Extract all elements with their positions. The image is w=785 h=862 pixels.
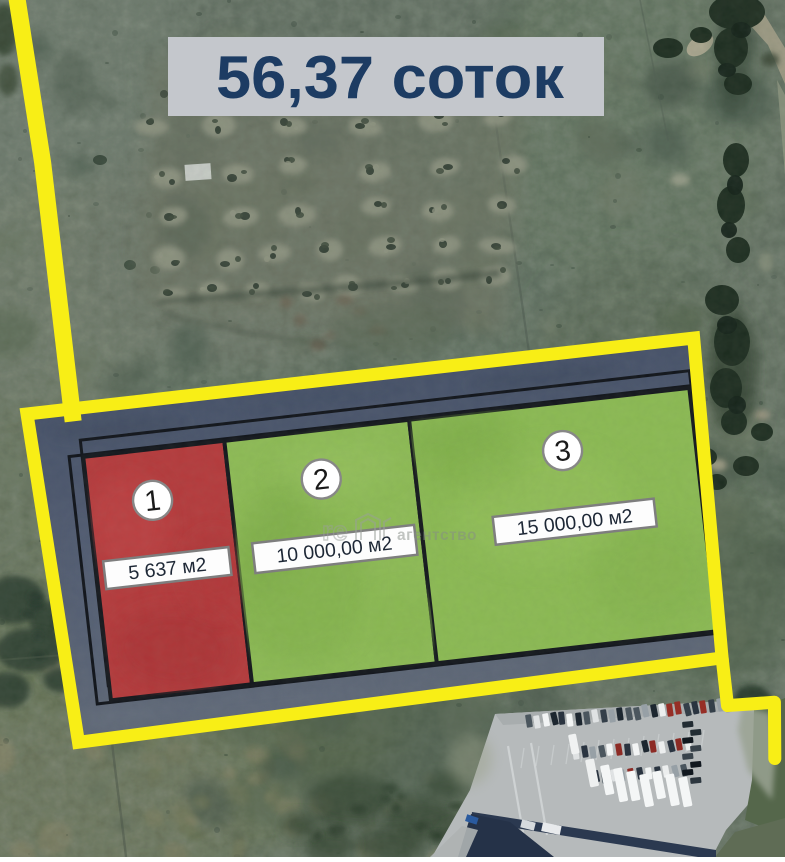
svg-text:56,37 соток: 56,37 соток	[216, 44, 565, 111]
svg-text:агентство: агентство	[397, 527, 477, 544]
svg-text:re: re	[322, 516, 348, 546]
